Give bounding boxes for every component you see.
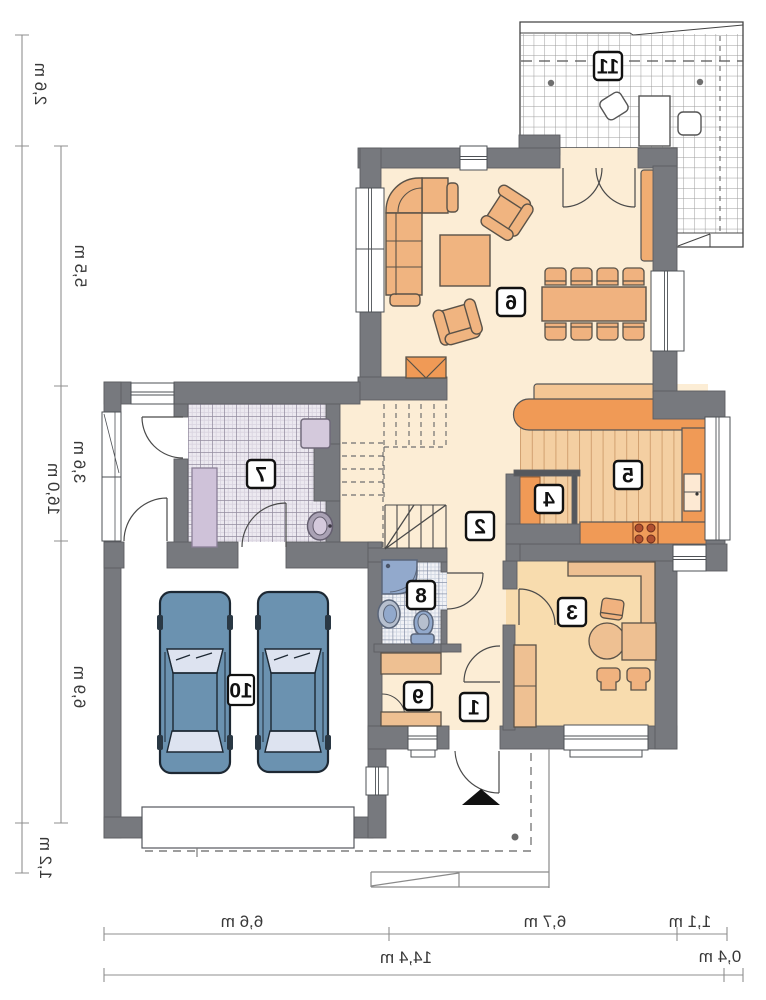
svg-text:9: 9 xyxy=(412,686,424,709)
svg-text:3: 3 xyxy=(566,602,578,625)
svg-text:4: 4 xyxy=(543,489,555,512)
svg-text:1,1 m: 1,1 m xyxy=(669,912,712,931)
svg-text:8: 8 xyxy=(415,585,427,608)
svg-text:16,0 m: 16,0 m xyxy=(44,463,63,515)
svg-text:5: 5 xyxy=(622,465,634,488)
svg-text:11: 11 xyxy=(597,56,620,79)
svg-text:5,5 m: 5,5 m xyxy=(71,245,90,288)
svg-text:3,6 m: 3,6 m xyxy=(70,441,89,484)
svg-text:10: 10 xyxy=(229,680,252,703)
svg-text:7: 7 xyxy=(255,464,267,487)
svg-text:6,7 m: 6,7 m xyxy=(524,912,567,931)
svg-text:14,4 m: 14,4 m xyxy=(380,948,432,967)
svg-text:6,9 m: 6,9 m xyxy=(70,666,89,709)
svg-text:1,2 m: 1,2 m xyxy=(36,837,55,880)
svg-text:6: 6 xyxy=(505,292,517,315)
svg-text:2: 2 xyxy=(474,516,486,539)
svg-text:0,4 m: 0,4 m xyxy=(699,947,742,966)
svg-text:6,6 m: 6,6 m xyxy=(221,912,264,931)
svg-text:2,6 m: 2,6 m xyxy=(31,63,50,106)
svg-text:1: 1 xyxy=(468,697,480,720)
